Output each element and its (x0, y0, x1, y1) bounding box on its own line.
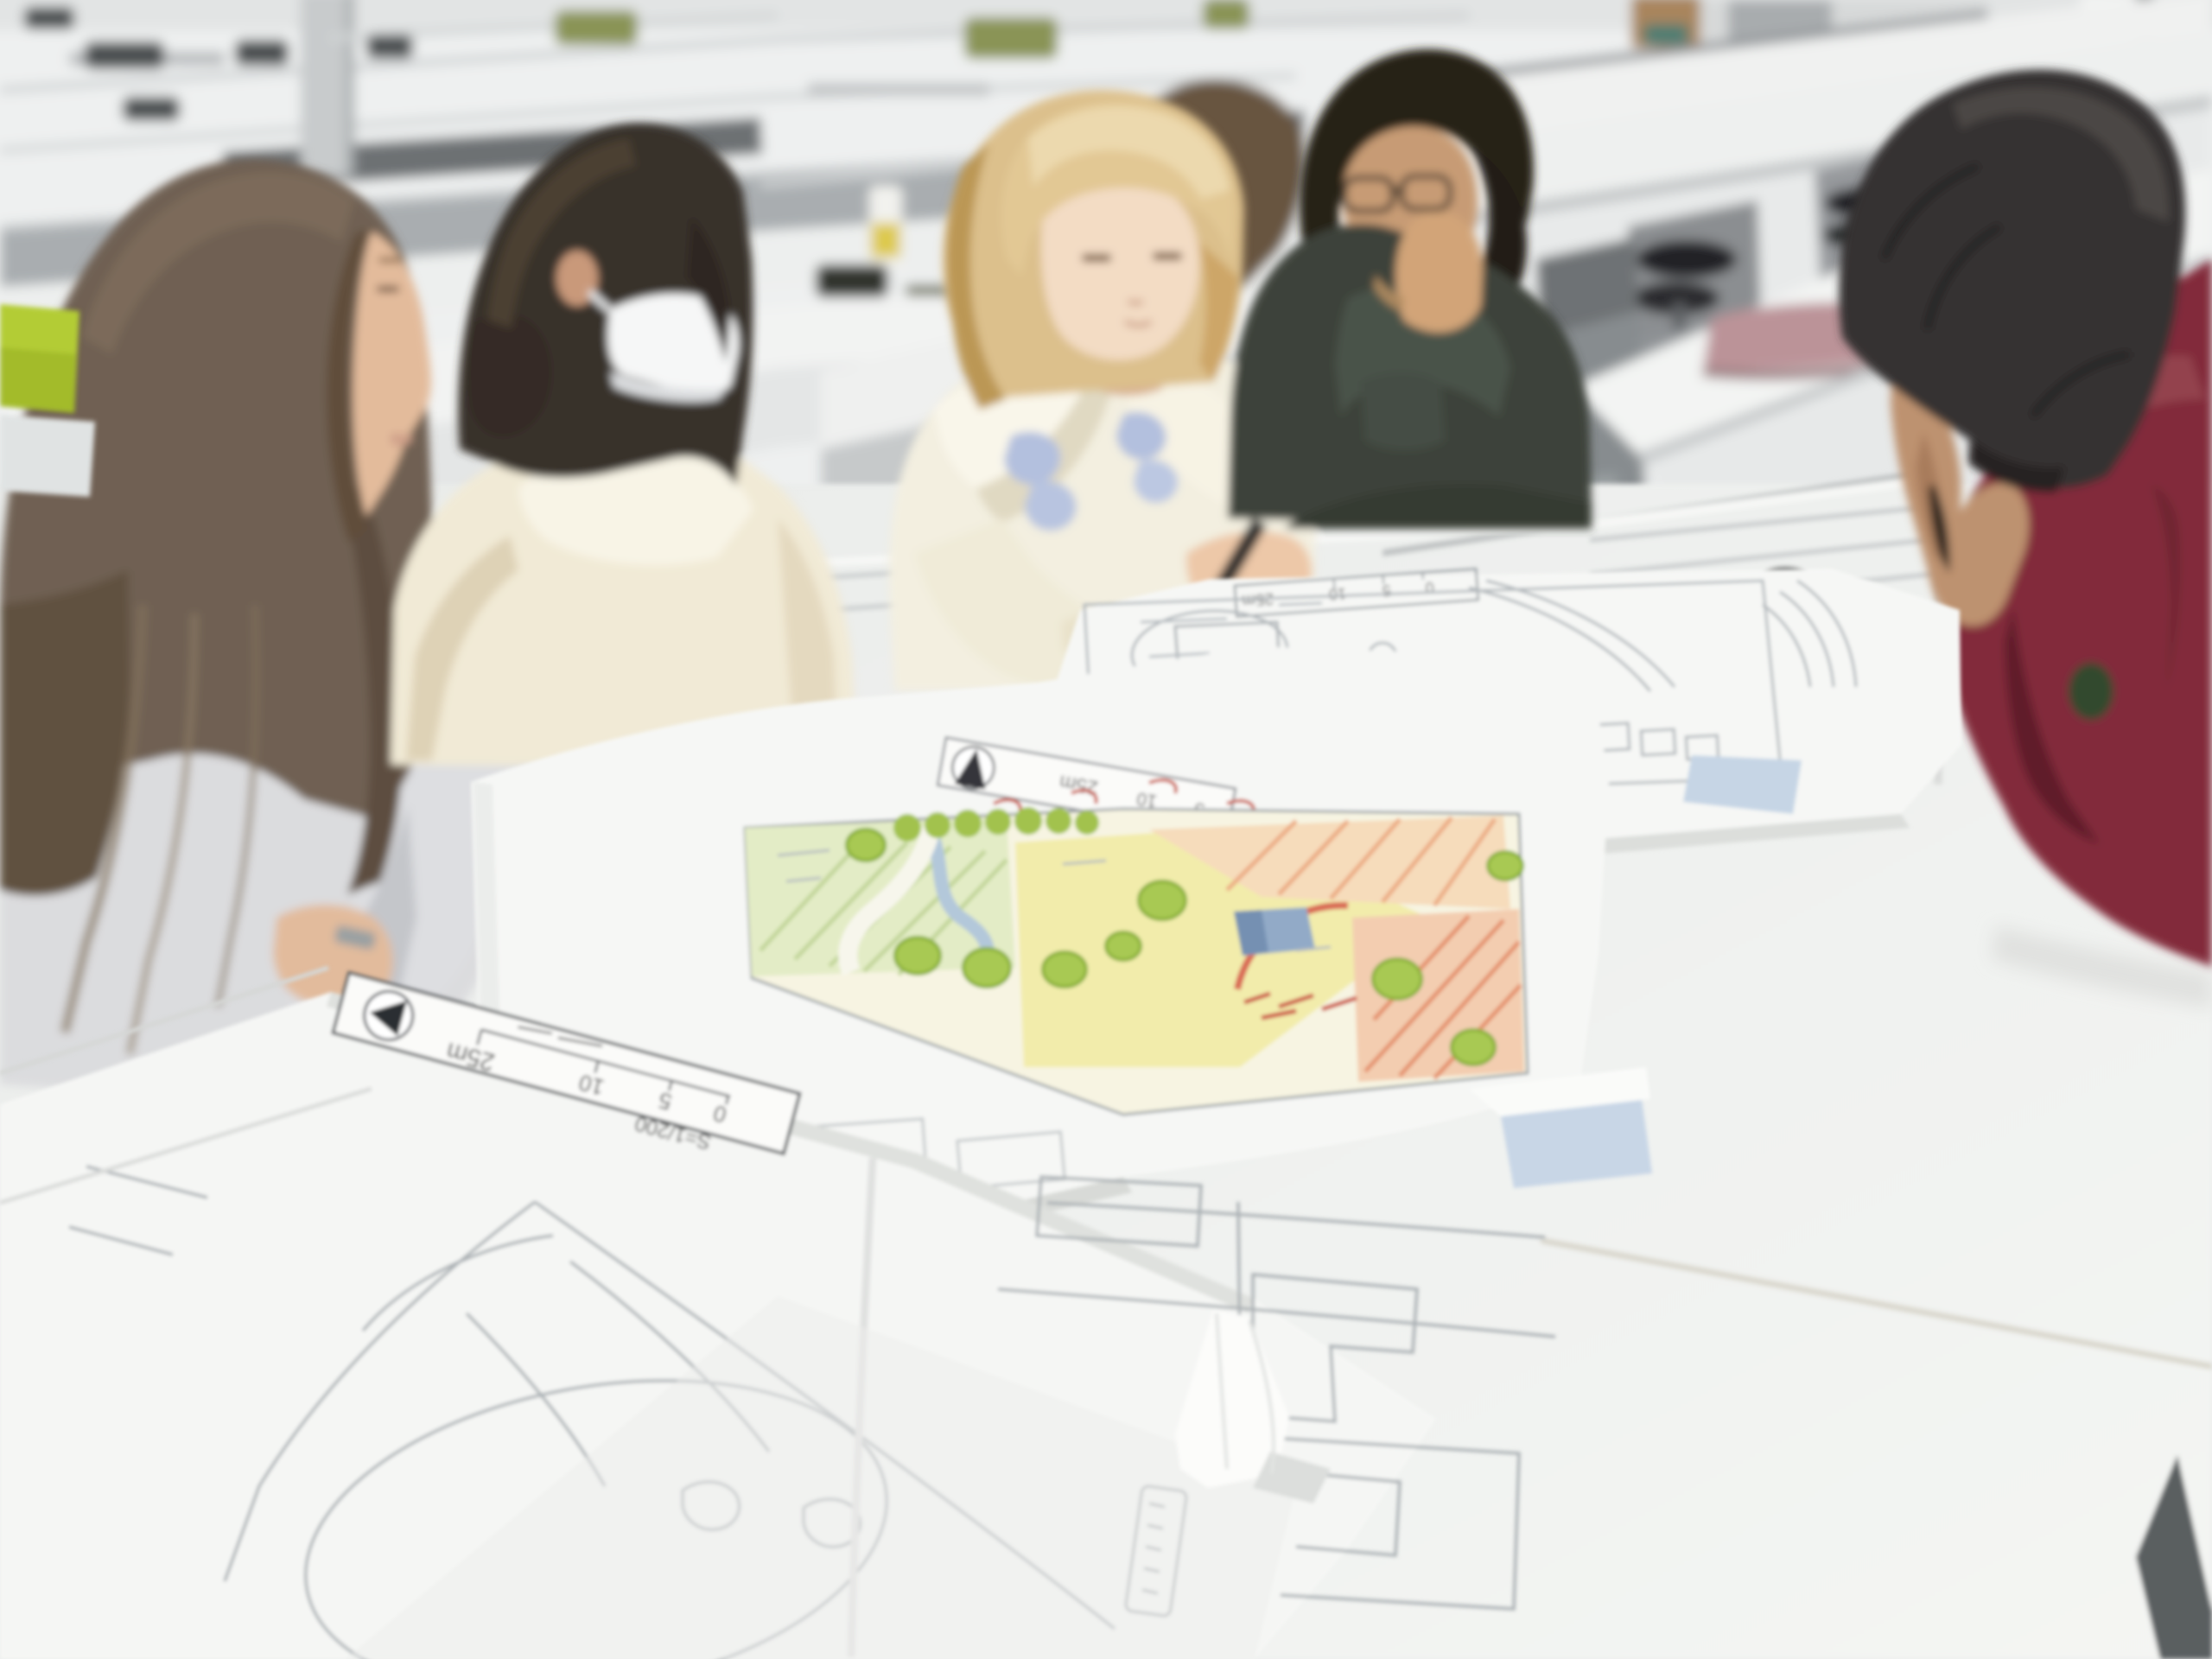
svg-text:10: 10 (1328, 585, 1346, 603)
svg-text:5: 5 (1382, 582, 1391, 600)
